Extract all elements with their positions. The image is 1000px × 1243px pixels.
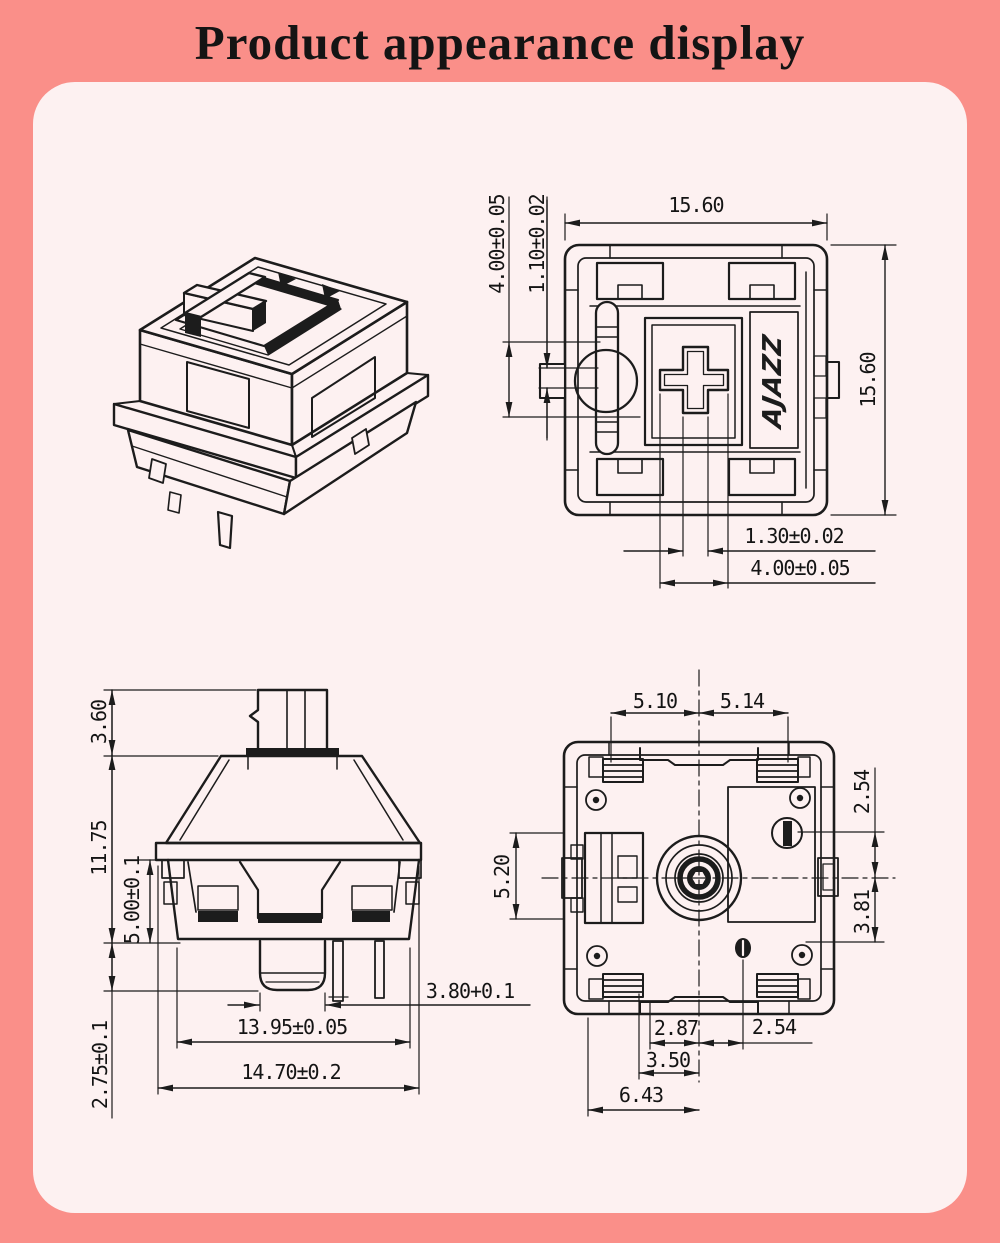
dim-lower-height: 5.00±0.1: [120, 856, 144, 944]
dim-post-height: 2.75±0.1: [88, 1021, 112, 1109]
dim-side: 5.20: [490, 855, 514, 899]
dim-post-diameter: 3.80+0.1: [426, 979, 514, 1003]
dim-stem-cross: 4.00±0.05: [750, 556, 849, 580]
dim-bottom-2: 2.54: [752, 1015, 796, 1039]
dim-bottom-width: 13.95±0.05: [237, 1015, 347, 1039]
dim-bottom-3: 3.50: [646, 1048, 690, 1072]
front-view: [104, 690, 530, 1118]
dim-stem-thickness: 1.30±0.02: [744, 524, 843, 548]
dim-stem-height: 3.60: [87, 700, 111, 744]
dim-body-height: 11.75: [87, 820, 111, 875]
dim-flange-width: 14.70±0.2: [241, 1060, 340, 1084]
isometric-view: [114, 258, 428, 548]
page: Product appearance display: [0, 0, 1000, 1243]
dim-right-upper: 2.54: [850, 770, 874, 814]
brand-logo: AJAZZ: [758, 332, 788, 430]
technical-drawing: [0, 0, 1000, 1243]
bottom-view: [510, 670, 895, 1116]
dim-right-lower: 3.81: [850, 890, 874, 934]
dim-pin-right: 5.14: [720, 689, 764, 713]
dim-top-led-hole: 4.00±0.05: [485, 194, 509, 293]
dim-bottom-1: 2.87: [654, 1016, 698, 1040]
dim-top-width: 15.60: [668, 193, 723, 217]
dim-bottom-4: 6.43: [619, 1083, 663, 1107]
dim-top-height: 15.60: [856, 352, 880, 407]
dim-top-slot: 1.10±0.02: [525, 194, 549, 293]
dim-pin-left: 5.10: [633, 689, 677, 713]
